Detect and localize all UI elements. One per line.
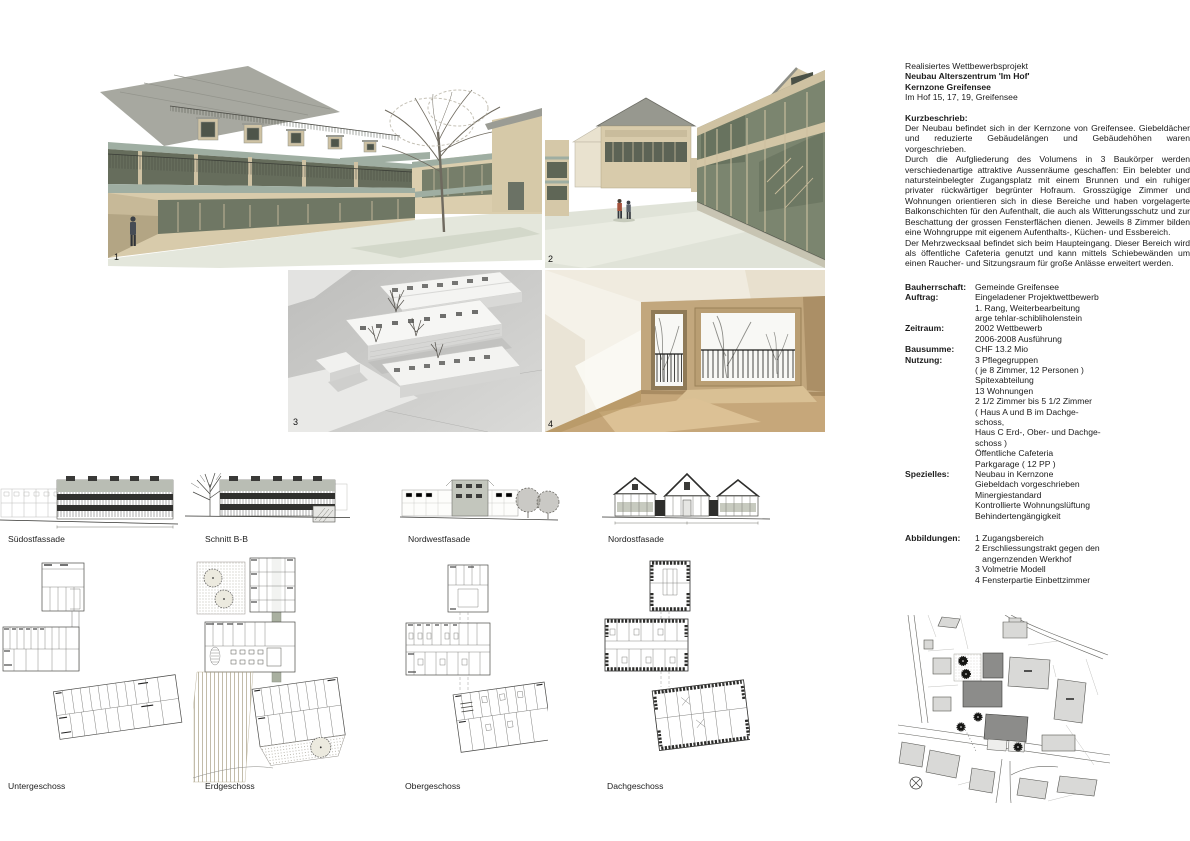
detail-row-auftrag: Auftrag: Eingeladener Projektwettbewerb1… bbox=[905, 292, 1190, 323]
plan-untergeschoss-drawing bbox=[0, 553, 185, 778]
site-plan-map bbox=[898, 615, 1110, 805]
plan-obergeschoss-label: Obergeschoss bbox=[405, 781, 460, 791]
plan-obergeschoss bbox=[398, 555, 548, 778]
elevation-schnitt-bb-label: Schnitt B-B bbox=[205, 534, 248, 544]
figure-rendering-1: 1 bbox=[100, 62, 542, 268]
elevation-suedostfassade bbox=[0, 472, 180, 530]
plan-untergeschoss-label: Untergeschoss bbox=[8, 781, 65, 791]
project-title: Neubau Alterszentrum 'Im Hof' bbox=[905, 71, 1190, 81]
figure-2-number: 2 bbox=[548, 254, 553, 264]
elevation-nordostfasade-drawing bbox=[600, 470, 772, 530]
project-type: Realisiertes Wettbewerbsprojekt bbox=[905, 61, 1190, 71]
rendering-1-image bbox=[100, 62, 542, 268]
plan-erdgeschoss bbox=[193, 550, 348, 785]
info-column: Realisiertes Wettbewerbsprojekt Neubau A… bbox=[905, 61, 1190, 585]
figure-model-3: 3 bbox=[288, 270, 542, 432]
detail-label: Nutzung: bbox=[905, 355, 975, 469]
elevation-suedostfassade-drawing bbox=[0, 472, 180, 530]
site-plan-drawing bbox=[898, 615, 1110, 805]
detail-label: Bausumme: bbox=[905, 344, 975, 354]
details-table: Bauherrschaft: Gemeinde Greifensee Auftr… bbox=[905, 282, 1190, 585]
detail-row-zeitraum: Zeitraum: 2002 Wettbewerb2006-2008 Ausfü… bbox=[905, 323, 1190, 344]
elevation-nordwestfasade-label: Nordwestfasade bbox=[408, 534, 470, 544]
rendering-2-image bbox=[545, 62, 825, 268]
plan-erdgeschoss-label: Erdgeschoss bbox=[205, 781, 255, 791]
short-description-heading: Kurzbeschrieb: bbox=[905, 113, 1190, 123]
detail-label: Bauherrschaft: bbox=[905, 282, 975, 292]
detail-value: 1 Zugangsbereich2 Erschliessungstrakt ge… bbox=[975, 533, 1190, 585]
project-address: Im Hof 15, 17, 19, Greifensee bbox=[905, 92, 1190, 102]
plan-erdgeschoss-drawing bbox=[193, 550, 348, 785]
detail-value: Neubau in KernzoneGiebeldach vorgeschrie… bbox=[975, 469, 1190, 521]
elevation-schnitt-bb bbox=[185, 470, 350, 530]
elevation-suedostfassade-label: Südostfassade bbox=[8, 534, 65, 544]
plan-untergeschoss bbox=[0, 553, 185, 778]
detail-label: Spezielles: bbox=[905, 469, 975, 521]
plan-dachgeschoss-label: Dachgeschoss bbox=[607, 781, 663, 791]
figure-4-number: 4 bbox=[548, 419, 553, 429]
elevation-nordostfasade bbox=[600, 470, 772, 530]
elevation-nordwestfasade-drawing bbox=[400, 472, 560, 530]
project-sheet: { "figures": { "fig1": {"number": "1"}, … bbox=[0, 0, 1190, 841]
detail-value: 2002 Wettbewerb2006-2008 Ausführung bbox=[975, 323, 1190, 344]
detail-value: Eingeladener Projektwettbewerb1. Rang, W… bbox=[975, 292, 1190, 323]
figure-interior-4: 4 bbox=[545, 270, 825, 432]
detail-row-spezielles: Spezielles: Neubau in KernzoneGiebeldach… bbox=[905, 469, 1190, 521]
plan-obergeschoss-drawing bbox=[398, 555, 548, 778]
elevation-nordwestfasade bbox=[400, 472, 560, 530]
project-header: Realisiertes Wettbewerbsprojekt Neubau A… bbox=[905, 61, 1190, 103]
detail-value: Gemeinde Greifensee bbox=[975, 282, 1190, 292]
elevation-nordostfasade-label: Nordostfasade bbox=[608, 534, 664, 544]
detail-row-bausumme: Bausumme: CHF 13.2 Mio bbox=[905, 344, 1190, 354]
detail-row-nutzung: Nutzung: 3 Pflegegruppen( je 8 Zimmer, 1… bbox=[905, 355, 1190, 469]
detail-value: 3 Pflegegruppen( je 8 Zimmer, 12 Persone… bbox=[975, 355, 1190, 469]
plan-dachgeschoss bbox=[595, 553, 750, 783]
model-3-image bbox=[288, 270, 542, 432]
detail-row-abbildungen: Abbildungen: 1 Zugangsbereich2 Erschlies… bbox=[905, 533, 1190, 585]
project-zone: Kernzone Greifensee bbox=[905, 82, 1190, 92]
plan-dachgeschoss-drawing bbox=[595, 553, 750, 783]
detail-label: Abbildungen: bbox=[905, 533, 975, 585]
figure-1-number: 1 bbox=[114, 252, 119, 262]
figure-rendering-2: 2 bbox=[545, 62, 825, 268]
detail-label: Zeitraum: bbox=[905, 323, 975, 344]
survey-symbol bbox=[910, 777, 922, 789]
figure-3-number: 3 bbox=[293, 417, 298, 427]
short-description: Der Neubau befindet sich in der Kernzone… bbox=[905, 123, 1190, 269]
interior-4-image bbox=[545, 270, 825, 432]
elevation-schnitt-bb-drawing bbox=[185, 470, 350, 530]
detail-label: Auftrag: bbox=[905, 292, 975, 323]
detail-row-bauherrschaft: Bauherrschaft: Gemeinde Greifensee bbox=[905, 282, 1190, 292]
detail-value: CHF 13.2 Mio bbox=[975, 344, 1190, 354]
